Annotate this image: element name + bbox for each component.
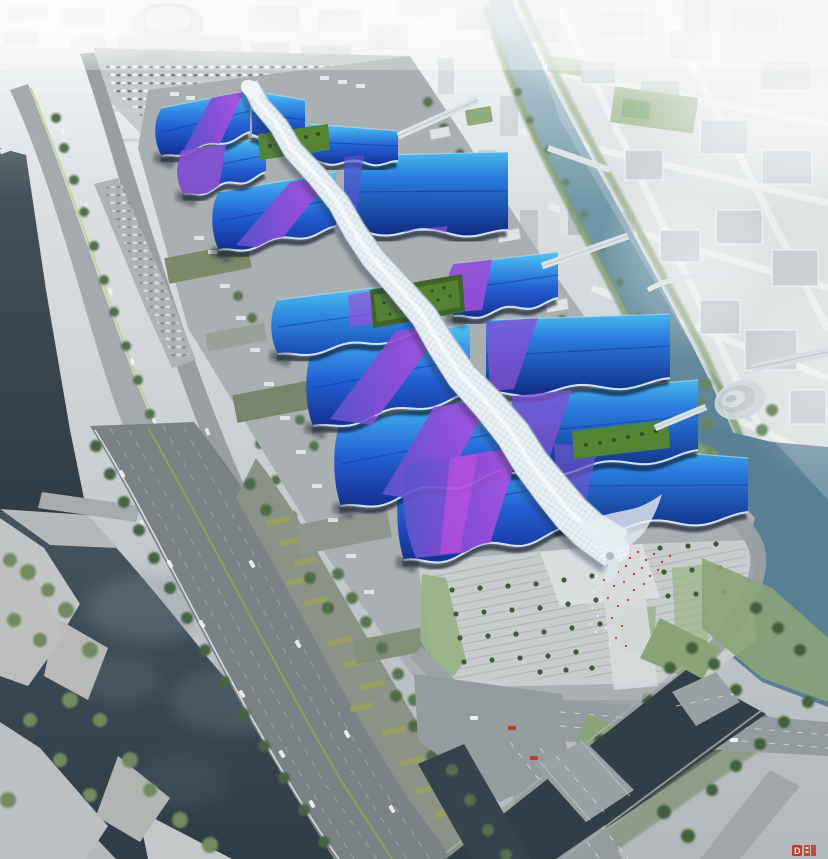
svg-text:D: D [794,846,801,856]
